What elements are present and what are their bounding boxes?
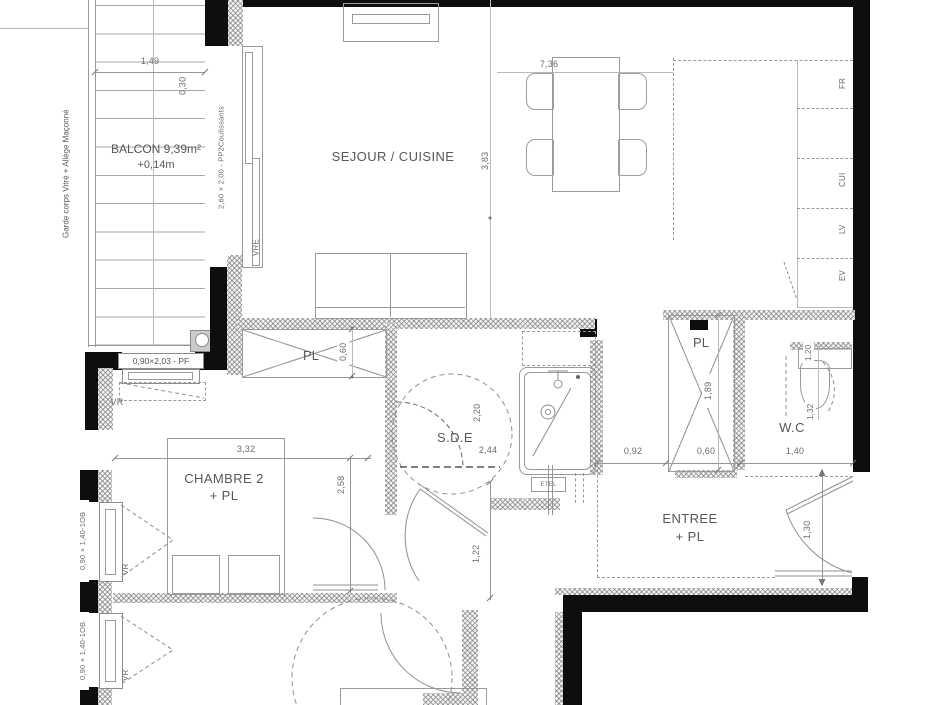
sofa-seat-line [315, 307, 465, 308]
insulated-wall [490, 498, 560, 510]
wall-pier [205, 0, 228, 46]
chair [618, 139, 647, 176]
dim-line-bedroom-v [350, 458, 351, 593]
french-window-pane [128, 372, 193, 380]
kitchen-counter-end [797, 307, 853, 308]
room-label-bedroom-suffix: + PL [168, 488, 280, 503]
bed-partial [340, 688, 487, 705]
dim-balcony-depth: 0,30 [176, 70, 189, 102]
chair [618, 73, 647, 110]
dining-table [552, 57, 620, 192]
window-pane [105, 509, 116, 575]
dim-line-corridor [490, 482, 491, 600]
duct-dashed [583, 473, 584, 503]
balcony-edge-line [88, 345, 206, 346]
dim-line-closet [352, 329, 353, 376]
kitchen-counter-dashed [673, 58, 674, 240]
balcony-level: +0,14m [100, 158, 212, 172]
duct-dashed [575, 473, 576, 503]
kitchen-counter-dashed [673, 60, 853, 61]
dim-bath-depth: 2,20 [471, 397, 483, 429]
wall-face-line [548, 465, 549, 515]
entry-zone-dashed [597, 445, 598, 577]
kitchen-counter-edge [797, 60, 798, 307]
dim-line-door [822, 470, 823, 585]
shutter-label: VR [120, 662, 131, 688]
kitchen-unit-divider [797, 258, 853, 259]
closet-label: PL [686, 334, 716, 350]
dim-bedroom-depth: 2,58 [335, 468, 347, 502]
insulated-wall [238, 318, 595, 329]
room-label-entry-suffix: + PL [648, 529, 732, 544]
dim-entry: 0,92 [614, 445, 652, 457]
french-window-spec: 0,90×2,03 - PF [118, 353, 204, 369]
wall-right [853, 0, 870, 472]
kitchen-unit-sink: EV [836, 260, 849, 290]
balcony-drain-cap [195, 333, 209, 347]
room-label-entry: ENTREE [648, 510, 732, 526]
window-pane [105, 620, 116, 682]
dim-entry-door: 1,30 [801, 514, 813, 546]
wc-threshold-dashed [745, 476, 853, 477]
shower-tray [524, 372, 591, 470]
guardrail-note: Garde corps Vitré + Allège Maçonné [58, 2, 74, 346]
entry-zone-dashed [597, 577, 775, 578]
bath-niche [522, 331, 596, 366]
insulated-wall [98, 470, 112, 502]
balcony-joint-line [153, 0, 154, 345]
kitchen-unit-hob: CUI [836, 162, 849, 198]
floor-plan: Garde corps Vitré + Allège Maçonné 1,49 … [0, 0, 940, 705]
kitchen-unit-divider [797, 158, 853, 159]
dim-line-wc [818, 345, 819, 420]
room-label-bath: S.D.E [428, 429, 482, 445]
bay-window-spec: 2,60×2,00 - PP2Coulissants [214, 55, 228, 260]
roller-shutter-box [119, 382, 206, 401]
kitchen-unit-fridge: FR [836, 68, 849, 98]
wall-bottom [563, 595, 868, 612]
dim-bath-width: 2,44 [468, 444, 508, 456]
insulated-wall [228, 0, 243, 46]
bay-shutter-label: VRE [250, 230, 262, 264]
dim-entry-closet-h: 1,89 [702, 374, 714, 408]
sideboard-detail [352, 14, 430, 24]
insulated-wall [98, 687, 112, 705]
facade-line [0, 28, 88, 29]
pillow [228, 555, 280, 594]
dim-living-depth: 3,83 [479, 144, 491, 178]
window-spec: 0,90×1,40-1OB [76, 500, 89, 582]
wall-face-line [552, 465, 553, 515]
wall-left [80, 580, 98, 613]
dim-wc-2: 1,32 [805, 396, 816, 428]
dim-corridor: 1,22 [470, 538, 482, 570]
insulated-wall [98, 580, 112, 613]
room-label-bedroom: CHAMBRE 2 [168, 470, 280, 486]
wall-top [205, 0, 870, 7]
sliding-pane [245, 52, 253, 164]
kitchen-unit-dishwasher: LV [836, 214, 849, 244]
insulated-wall [555, 612, 563, 705]
closet-label: PL [296, 347, 326, 363]
wall-bottom-return [563, 595, 582, 705]
shutter-label: VR [104, 396, 130, 408]
room-label-living: SEJOUR / CUISINE [318, 148, 468, 164]
chair [526, 139, 554, 176]
window-spec: 0,90×1,40-1OB [76, 612, 89, 690]
dim-closet-depth: 0,60 [337, 335, 349, 369]
pillow [172, 555, 220, 594]
dim-balcony-width: 1,49 [128, 55, 172, 67]
wall-left [80, 470, 98, 502]
insulated-wall [227, 255, 242, 375]
shutter-label: VR [120, 556, 131, 582]
room-label-balcony: BALCON 9,39m² [100, 141, 212, 156]
kitchen-unit-divider [797, 208, 853, 209]
dim-line-closet-v [718, 315, 719, 470]
dim-wc-1: 1,20 [803, 338, 814, 368]
chair [526, 73, 554, 110]
kitchen-unit-divider [797, 108, 853, 109]
dim-wc-width: 1,40 [774, 445, 816, 457]
sofa [315, 253, 467, 319]
insulated-wall [555, 588, 852, 595]
